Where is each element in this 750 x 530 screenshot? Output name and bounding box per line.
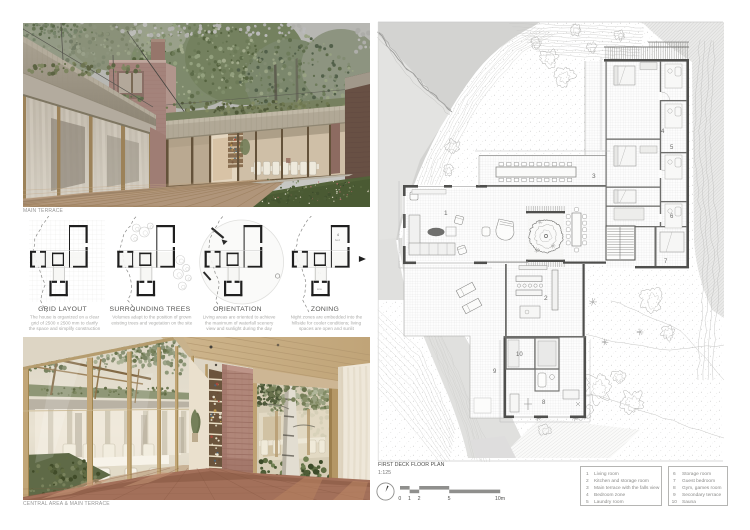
svg-text:5: 5	[586, 499, 589, 505]
svg-text:grid of 2500 x 2500 mm to clar: grid of 2500 x 2500 mm to clarify	[31, 320, 98, 325]
svg-text:1: 1	[586, 471, 589, 477]
svg-text:Volumes adapt to the position: Volumes adapt to the position of grown	[112, 315, 192, 320]
svg-text:Kitchen and storage room: Kitchen and storage room	[594, 478, 649, 484]
svg-text:4: 4	[586, 492, 589, 498]
svg-text:2: 2	[418, 496, 421, 502]
svg-text:7: 7	[673, 478, 676, 484]
svg-text:6: 6	[673, 471, 676, 477]
svg-text:existing trees and vegetation: existing trees and vegetation on the sit…	[111, 320, 192, 325]
svg-text:10: 10	[516, 352, 523, 358]
svg-text:SURROUNDING TREES: SURROUNDING TREES	[110, 306, 191, 313]
svg-text:9: 9	[673, 492, 676, 498]
svg-text:bed: bed	[335, 238, 340, 242]
svg-text:Night zones are embedded into: Night zones are embedded into the	[291, 315, 363, 320]
svg-text:1: 1	[444, 210, 448, 217]
svg-text:hillside for cooler conditions: hillside for cooler conditions; living	[292, 320, 362, 325]
svg-text:10m: 10m	[495, 496, 505, 502]
svg-text:3: 3	[586, 485, 589, 491]
svg-text:Gym, games room: Gym, games room	[682, 485, 721, 491]
svg-text:3: 3	[592, 173, 596, 180]
svg-text:2: 2	[586, 478, 589, 484]
svg-text:5: 5	[448, 496, 451, 502]
svg-text:the space and simplify constru: the space and simplify construction	[29, 326, 101, 331]
svg-text:view and sunlight during the d: view and sunlight during the day	[206, 326, 272, 331]
svg-text:4: 4	[337, 233, 339, 237]
svg-text:Sauna: Sauna	[682, 499, 696, 505]
svg-text:1: 1	[408, 496, 411, 502]
svg-text:Living areas are oriented to a: Living areas are oriented to achieve	[203, 315, 276, 320]
svg-text:the maximum of waterfall scene: the maximum of waterfall scenery	[205, 320, 274, 325]
svg-text:Main terrace with the falls vi: Main terrace with the falls view	[594, 485, 660, 491]
svg-text:Guest bedroom: Guest bedroom	[682, 478, 715, 484]
svg-text:2: 2	[544, 295, 548, 302]
svg-text:Bedroom zone: Bedroom zone	[594, 492, 626, 498]
svg-text:The house is organized on a cl: The house is organized on a clear	[30, 315, 100, 320]
svg-text:0: 0	[398, 496, 401, 502]
svg-text:ORIENTATION: ORIENTATION	[213, 306, 262, 313]
svg-text:Laundry room: Laundry room	[594, 499, 624, 505]
svg-text:GRID LAYOUT: GRID LAYOUT	[38, 306, 87, 313]
svg-text:ZONING: ZONING	[311, 306, 339, 313]
svg-text:Secondary terrace: Secondary terrace	[682, 492, 722, 498]
svg-text:sna: sna	[317, 287, 322, 291]
svg-text:spaces are open and sunlit: spaces are open and sunlit	[299, 326, 355, 331]
svg-text:Living room: Living room	[594, 471, 619, 477]
svg-text:8: 8	[673, 485, 676, 491]
svg-text:10: 10	[672, 499, 678, 505]
svg-text:Storage room: Storage room	[682, 471, 711, 477]
